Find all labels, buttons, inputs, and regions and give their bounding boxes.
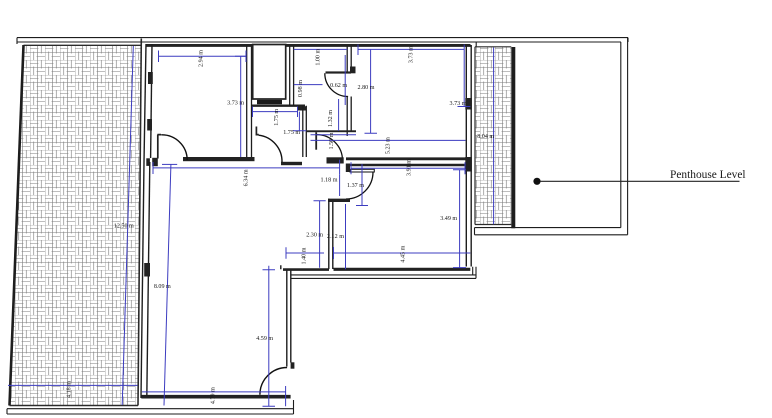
svg-text:0.62 m: 0.62 m: [330, 83, 347, 89]
svg-text:1.37 m: 1.37 m: [347, 183, 364, 189]
svg-text:Penthouse Level: Penthouse Level: [670, 169, 746, 181]
svg-text:3.73 m: 3.73 m: [227, 100, 244, 106]
svg-text:4.45 m: 4.45 m: [400, 245, 406, 262]
svg-text:1.18 m: 1.18 m: [321, 178, 338, 184]
svg-text:12.50 m: 12.50 m: [114, 224, 134, 230]
svg-text:0.98 m: 0.98 m: [298, 80, 304, 97]
svg-text:3.91 m: 3.91 m: [407, 159, 413, 176]
svg-text:2.12 m: 2.12 m: [327, 234, 344, 240]
svg-text:1.40 m: 1.40 m: [302, 247, 308, 264]
svg-text:5.23 m: 5.23 m: [385, 137, 391, 154]
svg-text:3.73 m: 3.73 m: [450, 101, 467, 107]
svg-text:2.94 m: 2.94 m: [199, 50, 205, 67]
svg-text:1.00 m: 1.00 m: [316, 48, 322, 65]
svg-text:4.18 m: 4.18 m: [67, 381, 73, 398]
svg-text:1.50 m: 1.50 m: [329, 132, 335, 149]
svg-text:3.49 m: 3.49 m: [440, 216, 457, 222]
svg-text:2.30 m: 2.30 m: [306, 232, 323, 238]
svg-text:8.09 m: 8.09 m: [154, 284, 171, 290]
svg-text:4.79 m: 4.79 m: [210, 387, 216, 404]
svg-text:6.34 m: 6.34 m: [243, 169, 249, 186]
svg-text:2.80 m: 2.80 m: [358, 85, 375, 91]
svg-text:8.04 m: 8.04 m: [477, 134, 494, 140]
svg-text:1.75 m: 1.75 m: [283, 130, 300, 136]
svg-text:1.32 m: 1.32 m: [328, 110, 334, 127]
svg-text:3.73 m: 3.73 m: [409, 46, 415, 63]
svg-text:1.75 m: 1.75 m: [274, 109, 280, 126]
svg-text:4.59 m: 4.59 m: [256, 336, 273, 342]
